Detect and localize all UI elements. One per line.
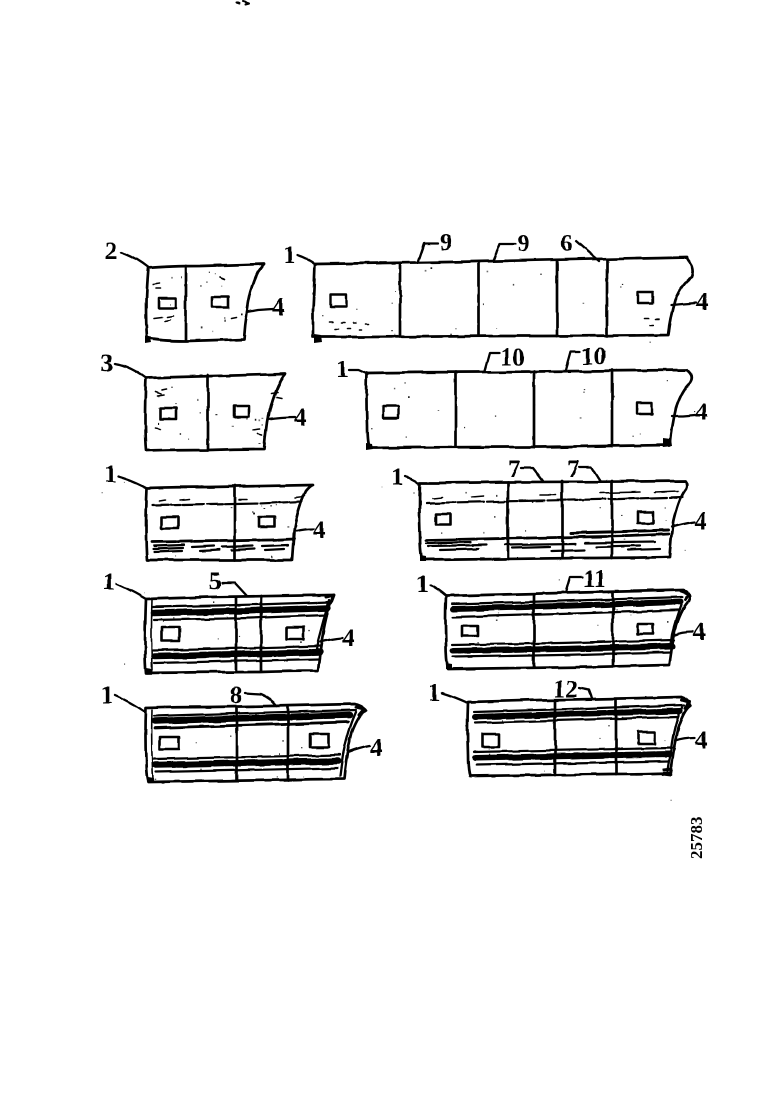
svg-text:4: 4 [370, 735, 383, 762]
svg-text:4: 4 [695, 727, 708, 754]
svg-text:4: 4 [342, 625, 355, 652]
svg-text:9: 9 [440, 229, 453, 256]
svg-text:11: 11 [583, 566, 607, 593]
svg-text:12: 12 [553, 676, 578, 703]
svg-text:7: 7 [567, 456, 580, 483]
svg-text:8: 8 [230, 682, 243, 709]
svg-text:1: 1 [416, 571, 429, 598]
svg-text:10: 10 [500, 344, 525, 371]
svg-text:1: 1 [103, 569, 116, 596]
svg-text:3: 3 [101, 350, 114, 377]
svg-text:1: 1 [391, 464, 404, 491]
svg-text:5: 5 [209, 568, 222, 595]
svg-text:1: 1 [104, 461, 117, 488]
svg-text:6: 6 [560, 230, 573, 257]
svg-text:4: 4 [696, 289, 709, 316]
svg-text:10: 10 [581, 343, 606, 370]
svg-text:9: 9 [517, 230, 530, 257]
svg-text:4: 4 [694, 508, 707, 535]
svg-text:1: 1 [336, 356, 349, 383]
svg-text:1: 1 [283, 242, 296, 269]
svg-text:1: 1 [101, 682, 114, 709]
svg-text:7: 7 [508, 456, 521, 483]
svg-text:25783: 25783 [687, 817, 706, 860]
svg-text:1: 1 [428, 679, 441, 706]
svg-text:4: 4 [272, 294, 285, 321]
svg-text:4: 4 [695, 399, 708, 426]
svg-text:4: 4 [313, 517, 326, 544]
svg-text:2: 2 [105, 238, 118, 265]
svg-text:4: 4 [693, 619, 706, 646]
